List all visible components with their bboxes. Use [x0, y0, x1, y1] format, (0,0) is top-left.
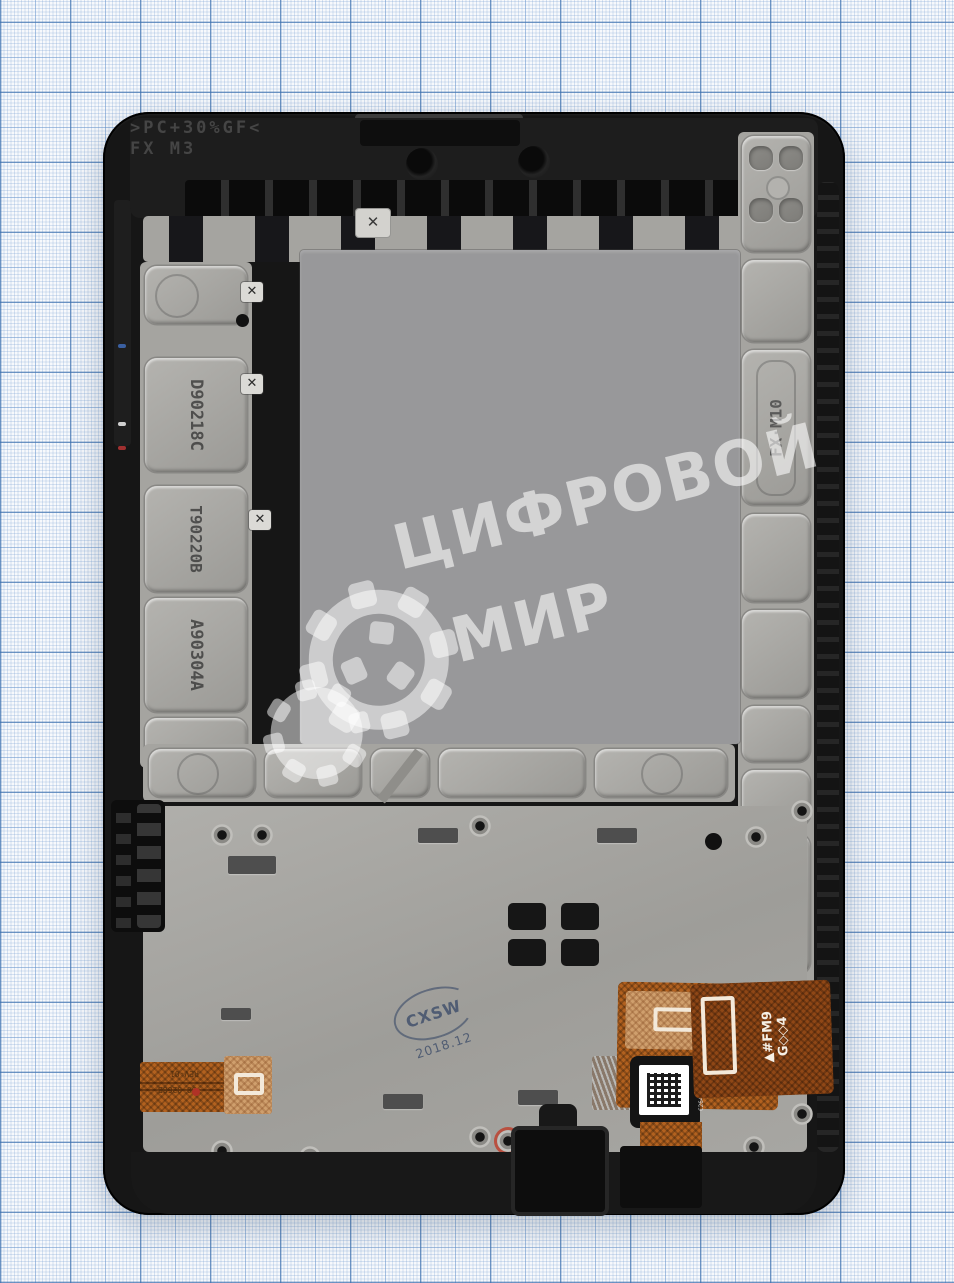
black-pad — [508, 903, 546, 930]
screw-hole — [211, 824, 233, 846]
recess-square — [779, 198, 803, 222]
ladder-clips — [116, 804, 131, 928]
stamped-code-a90304a: A90304A — [186, 619, 206, 691]
screw-cross: ✕ — [247, 284, 258, 299]
side-speck-red — [118, 446, 126, 450]
adhesive-pad — [518, 1090, 558, 1105]
emboss-cell — [742, 706, 810, 762]
recess-square — [749, 198, 773, 222]
adhesive-pad — [383, 1094, 423, 1109]
emboss-cell-mold-code: FX·M10 — [742, 350, 810, 505]
black-dot — [705, 833, 722, 850]
emboss-cell-code-1: D90218C — [145, 358, 247, 472]
metal-clip: ✕ — [355, 208, 391, 238]
stamped-code-t90220b: T90220B — [187, 505, 206, 572]
circle-cutout — [177, 753, 219, 795]
emboss-cell — [742, 260, 810, 342]
flex-connector-black — [620, 1146, 702, 1208]
red-paint-dot — [192, 1088, 200, 1096]
emboss-cell — [145, 266, 247, 324]
ladder-slots — [137, 804, 161, 928]
left-rail-ladder — [111, 800, 165, 932]
qr-code-label — [639, 1065, 689, 1115]
upper-right-flex: ▲#FM9 G◇◇4 — [690, 980, 834, 1099]
recess-square — [749, 146, 773, 170]
lcd-shield-plate — [300, 250, 740, 744]
black-pad — [508, 939, 546, 966]
diagonal-brace — [377, 748, 423, 803]
middle-rail — [143, 744, 735, 802]
screw-dot — [236, 314, 249, 327]
qc-stamp: CXSW 2018.12 — [387, 977, 485, 1065]
top-screw-boss — [518, 146, 550, 178]
circle-cutout — [641, 753, 683, 795]
emboss-cell-code-3: A90304A — [145, 598, 247, 712]
emboss-cell — [595, 749, 727, 797]
flex-code-label: ▲#FM9 G◇◇4 — [760, 1010, 792, 1063]
black-pad — [561, 903, 599, 930]
adhesive-pad — [418, 828, 458, 843]
stamped-code-fx-m10: FX·M10 — [767, 399, 786, 457]
dock-connector-housing — [511, 1126, 609, 1216]
pad-window-vertical — [701, 996, 738, 1075]
screw-cross: ✕ — [255, 512, 266, 527]
screw-hole — [469, 815, 491, 837]
side-speck-blue — [118, 344, 126, 348]
emboss-cell — [265, 749, 361, 797]
vent-grille — [185, 180, 785, 220]
top-screw-boss — [406, 148, 438, 180]
emboss-cell-code-2: T90220B — [145, 486, 247, 592]
circle-boss — [766, 176, 790, 200]
screw-cross: ✕ — [247, 376, 258, 391]
screw-hole — [791, 800, 813, 822]
flex-revision: REV-01 — [170, 1068, 199, 1078]
top-plastic-bar: >PC+30%GF< FX M3 — [130, 118, 818, 218]
adhesive-pad — [228, 856, 276, 874]
emboss-cell-diagonal — [371, 749, 429, 797]
side-speck-white — [118, 422, 126, 426]
left-midframe-column: D90218C T90220B A90304A — [140, 262, 252, 768]
screw-hole — [251, 824, 273, 846]
clip-cross-mark: ✕ — [367, 213, 380, 231]
emboss-cell — [742, 610, 810, 698]
screw-plate: ✕ — [241, 374, 263, 394]
screw-hole — [791, 1103, 813, 1125]
pad-window — [234, 1073, 264, 1095]
corner-block — [742, 136, 810, 252]
emboss-cell — [149, 749, 255, 797]
emboss-cell — [439, 749, 585, 797]
screw-hole — [745, 826, 767, 848]
circle-cutout — [155, 274, 199, 318]
black-pad — [561, 939, 599, 966]
emboss-cell — [742, 514, 810, 602]
screw-plate: ✕ — [241, 282, 263, 302]
stamped-code-d90218c: D90218C — [186, 379, 206, 451]
flex-code-line2: G◇◇4 — [775, 1010, 792, 1062]
adhesive-pad — [597, 828, 637, 843]
bottom-plastic-bezel — [131, 1152, 817, 1214]
screw-hole — [469, 1126, 491, 1148]
recess-square — [779, 146, 803, 170]
adhesive-pad — [221, 1008, 251, 1020]
left-flex-pad — [224, 1056, 272, 1114]
camera-module: C264 6D3 04C1 — [630, 1056, 700, 1128]
flex-part-number: 90-0268B — [158, 1084, 197, 1094]
screw-plate: ✕ — [249, 510, 271, 530]
top-inset-slot — [360, 120, 520, 146]
side-port-strip — [114, 200, 131, 446]
